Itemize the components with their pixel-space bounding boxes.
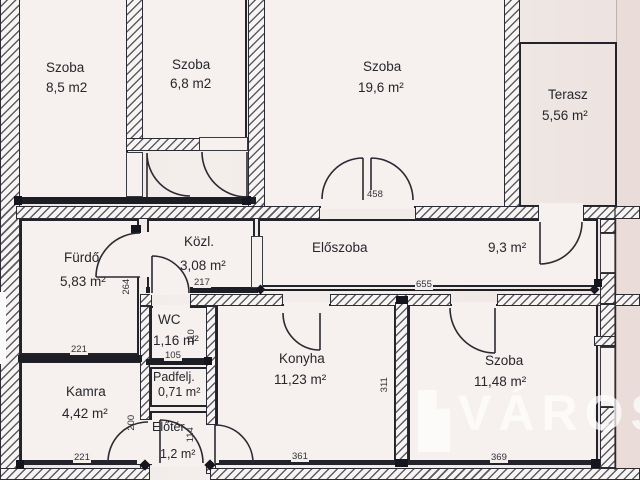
dim-114: 114 (186, 427, 196, 442)
dim-105: 105 (164, 351, 182, 361)
room-label-terasz-name: Terasz (548, 87, 588, 102)
door-arc (147, 153, 190, 197)
room-label-kamra-name: Kamra (66, 384, 106, 399)
door-arc (215, 425, 253, 463)
room-label-eloter-name: Előtér (152, 420, 185, 434)
room-label-eloter-area: 1,2 m² (160, 447, 195, 461)
room-label-szoba-8-5-area: 8,5 m2 (46, 80, 87, 95)
dim-221-bottom: 221 (73, 453, 91, 463)
door-arc (322, 158, 363, 200)
room-label-eloszoba-name: Előszoba (312, 240, 368, 255)
room-label-szoba-11-48-area: 11,48 m² (474, 374, 526, 389)
room-label-padfelj-area: 0,71 m² (158, 385, 200, 399)
room-label-szoba-8-5-name: Szoba (46, 60, 84, 75)
room-label-szoba-6-8-area: 6,8 m2 (170, 76, 211, 91)
room-label-padfelj-name: Padfelj. (153, 370, 195, 384)
door-arc (450, 308, 495, 353)
room-label-eloszoba-area: 9,3 m² (488, 240, 526, 255)
dim-200: 200 (127, 415, 137, 431)
room-label-szoba-11-48-name: Szoba (485, 353, 523, 368)
dim-655: 655 (415, 280, 433, 290)
door-arc (96, 233, 140, 277)
room-label-szoba-6-8-name: Szoba (172, 57, 210, 72)
room-label-wc-area: 1,16 m² (153, 333, 199, 348)
dim-369: 369 (490, 453, 508, 463)
room-label-wc-name: WC (158, 312, 181, 327)
room-label-terasz-area: 5,56 m² (542, 108, 588, 123)
dim-217: 217 (193, 278, 211, 288)
room-label-szoba-19-6-name: Szoba (363, 59, 401, 74)
dim-311: 311 (380, 377, 390, 392)
floor-plan-canvas: 458 264 217 655 221 105 110 200 114 221 … (0, 0, 640, 480)
dim-221-top: 221 (70, 345, 88, 355)
door-arc (540, 222, 582, 264)
dim-361: 361 (291, 452, 309, 462)
room-label-konyha-name: Konyha (279, 351, 325, 366)
room-label-kamra-area: 4,42 m² (62, 406, 108, 421)
room-label-kozl-area: 3,08 m² (180, 258, 226, 273)
door-arc (202, 152, 247, 197)
dim-458: 458 (366, 190, 384, 200)
room-label-furdo-name: Fürdő (64, 250, 99, 265)
room-label-kozl-name: Közl. (184, 234, 214, 249)
room-label-konyha-area: 11,23 m² (274, 372, 326, 387)
door-arc (283, 313, 320, 350)
dim-264: 264 (122, 279, 132, 295)
room-label-szoba-19-6-area: 19,6 m² (358, 80, 404, 95)
room-label-furdo-area: 5,83 m² (60, 274, 106, 289)
